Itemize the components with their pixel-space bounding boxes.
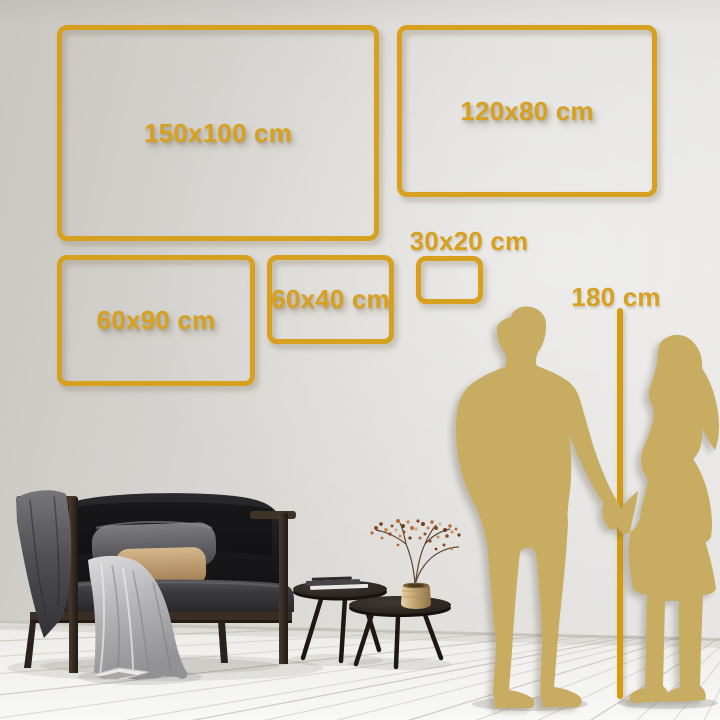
size-frame-60x40: 60x40 cm <box>267 255 394 344</box>
size-label-60x90: 60x90 cm <box>97 305 216 336</box>
size-label-150x100: 150x100 cm <box>144 118 292 149</box>
size-guide-scene: 150x100 cm 120x80 cm 60x90 cm 60x40 cm 3… <box>0 0 720 720</box>
size-label-30x20: 30x20 cm <box>402 226 536 257</box>
size-frame-30x20 <box>416 256 483 304</box>
height-reference-label: 180 cm <box>546 282 686 313</box>
size-frame-60x90: 60x90 cm <box>57 255 255 386</box>
size-label-120x80: 120x80 cm <box>460 96 593 127</box>
size-label-60x40: 60x40 cm <box>271 284 390 315</box>
size-frame-150x100: 150x100 cm <box>57 25 379 241</box>
height-reference-line <box>617 308 623 699</box>
size-frame-120x80: 120x80 cm <box>397 25 657 197</box>
